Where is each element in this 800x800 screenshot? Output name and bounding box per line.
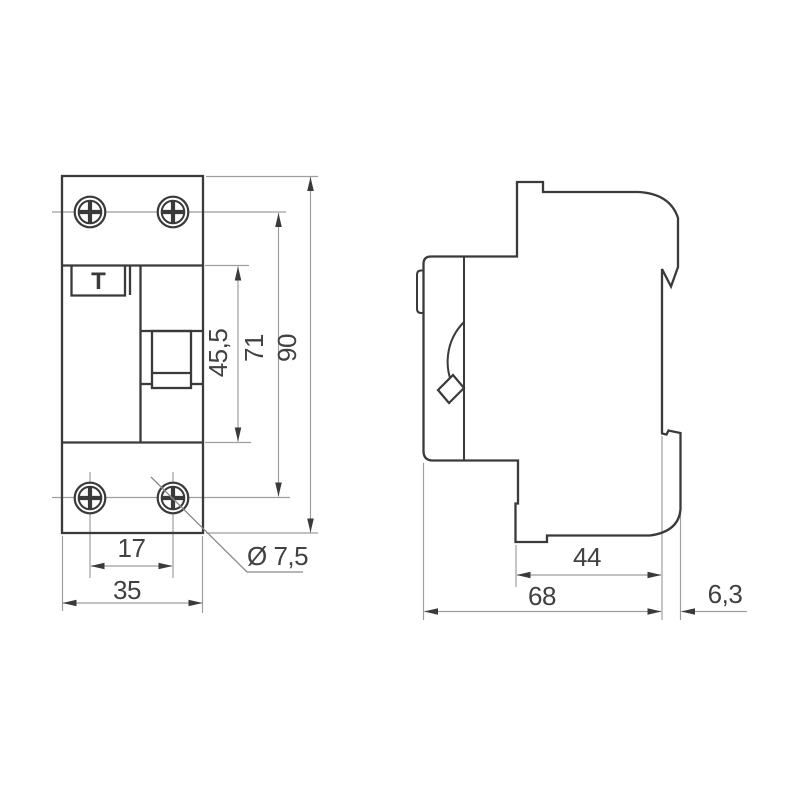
dim-width-label: 35 <box>113 575 141 605</box>
dim-clip-protrusion-label: 6,3 <box>708 579 743 609</box>
toggle-lever-side <box>438 375 464 403</box>
breaker-front-body <box>62 176 203 533</box>
test-button-label: T <box>91 268 106 295</box>
screw-icon <box>75 483 106 514</box>
breaker-dimension-drawing: T <box>0 0 800 800</box>
test-button: T <box>72 266 126 296</box>
dim-window-height-label: 45,5 <box>203 329 233 378</box>
dim-rail-offset-label: 44 <box>573 542 601 572</box>
dim-hole-rows-label: 71 <box>239 334 269 362</box>
dim-depth-label: 68 <box>528 581 556 611</box>
dim-hole-columns-label: 17 <box>118 533 146 563</box>
dim-total-height-label: 90 <box>272 334 302 362</box>
side-dimension-lines <box>424 572 747 615</box>
breaker-side-body <box>417 182 681 542</box>
screw-icon <box>75 197 106 228</box>
toggle-switch <box>141 331 204 388</box>
screw-icon <box>158 197 189 228</box>
technical-drawing-page: T <box>0 0 800 800</box>
dim-hole-diameter-label: Ø 7,5 <box>247 541 308 571</box>
side-view-drawing: 44 68 6,3 <box>417 182 747 620</box>
front-view-drawing: T <box>52 176 318 613</box>
